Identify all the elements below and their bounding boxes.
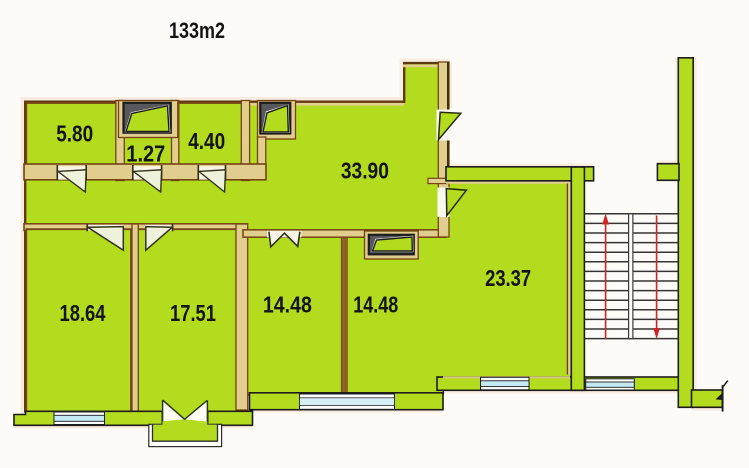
svg-text:18.64: 18.64 <box>60 300 106 326</box>
svg-text:4.40: 4.40 <box>188 128 225 154</box>
svg-text:5.80: 5.80 <box>56 121 93 147</box>
svg-text:17.51: 17.51 <box>170 300 216 326</box>
svg-text:33.90: 33.90 <box>341 158 389 184</box>
svg-text:14.48: 14.48 <box>353 292 398 318</box>
svg-text:23.37: 23.37 <box>485 265 531 291</box>
svg-text:1.27: 1.27 <box>126 141 165 167</box>
svg-text:14.48: 14.48 <box>263 292 312 318</box>
svg-text:133m2: 133m2 <box>169 18 225 43</box>
